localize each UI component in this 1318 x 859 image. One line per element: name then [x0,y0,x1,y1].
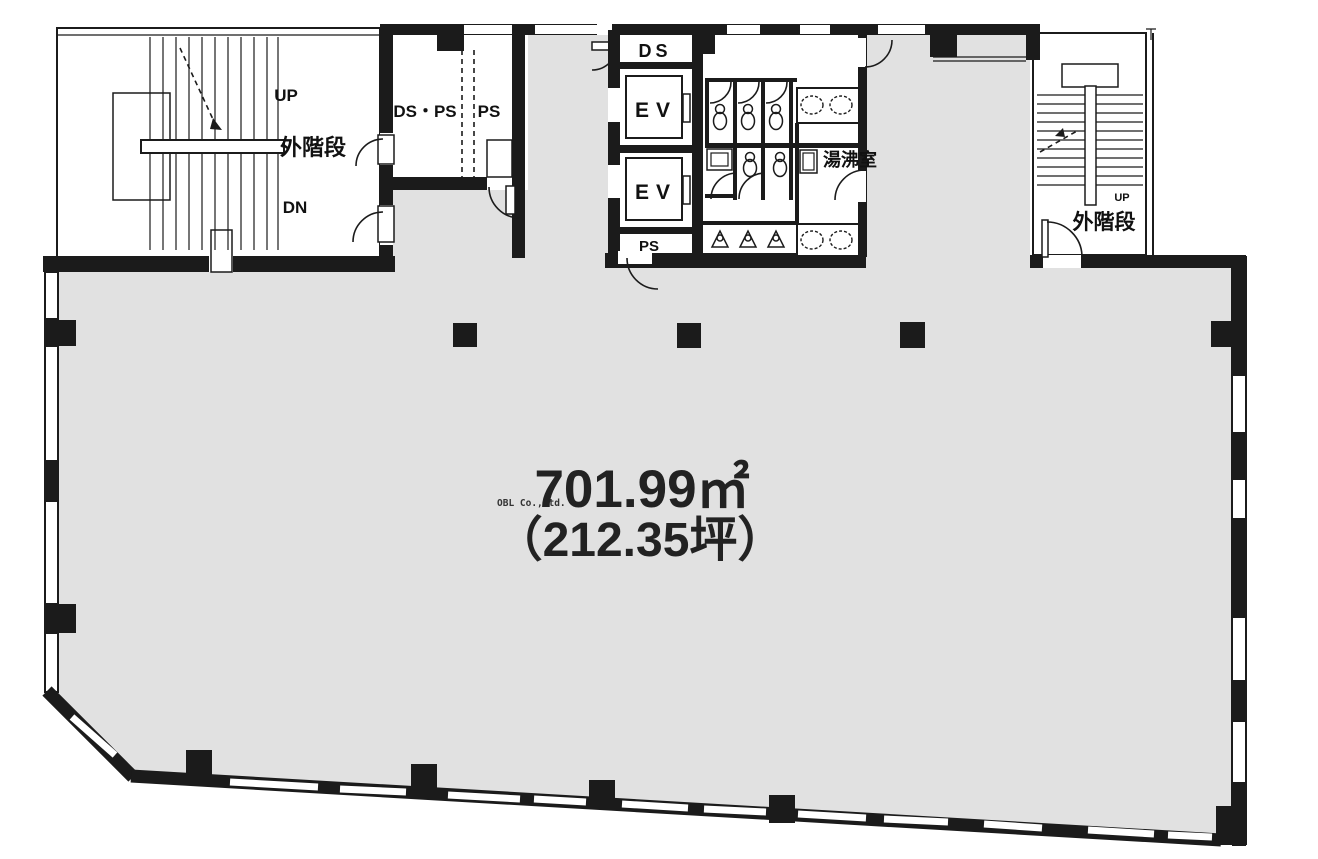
right-wall-segment [1232,432,1246,480]
column-bump [186,750,212,777]
area-labels: OBL Co.,Ltd. 701.99㎡ （212.35坪） [495,459,786,567]
elevator-indicator [683,94,690,122]
door-gap [858,38,866,67]
elevator-indicator [683,176,690,204]
column-bump [930,31,957,57]
floor-below-duct-room [393,190,525,262]
floor-right-of-toilets [866,34,1030,258]
kitchenette-label: 湯沸室 [823,149,877,170]
column-bump [589,780,615,807]
duct-block [437,25,464,51]
stall-wall [705,143,865,148]
stall-wall [795,123,799,223]
stall-wall [733,78,737,146]
top-wall-window [878,25,925,34]
stall-wall [789,148,793,200]
column-bump [46,320,76,346]
core-wall [608,62,703,69]
top-wall-window [535,25,597,34]
stall-wall [705,78,797,82]
duct-room-right-wall [512,25,525,258]
elevator-door-gap [608,88,620,122]
right-wall-segment [1232,680,1246,722]
column-bump [1211,321,1233,347]
elevator-door-gap [608,165,620,198]
floor-plan-drawing: UP 外階段 DN DS・PS PS [0,0,1318,859]
area-tsubo: （212.35坪） [495,514,786,567]
duct-step [487,140,512,177]
stair-landing-divider [1085,86,1096,205]
stall-wall [789,78,793,146]
area-square-meters: 701.99㎡ [534,459,749,519]
stair-left-name-label: 外階段 [280,135,346,160]
top-wall-stub [1026,24,1040,60]
core-wall [608,227,703,234]
stall-wall [761,78,765,146]
elevator1-label: EV [635,99,677,122]
right-wall-segment [1232,518,1246,618]
stall-wall [703,221,798,225]
right-wall-segment [1231,256,1247,376]
column-bump [46,604,76,633]
sink-counter [797,224,859,256]
door-gap [858,171,866,202]
stair-left-down-label: DN [283,198,308,217]
stall-wall [705,194,735,198]
stair-right-up-label: UP [1114,192,1129,204]
stall-wall [705,78,709,146]
sink-counter [797,88,859,123]
column [900,322,925,348]
duct-room-label-left: DS・PS [393,102,456,121]
top-wall-window [800,25,830,34]
elevator2-label: EV [635,181,677,204]
column [453,323,477,347]
column-bump [411,764,437,791]
stair-left-up-label: UP [274,86,298,105]
floor-plan: UP 外階段 DN DS・PS PS [0,0,1318,859]
pipe-shaft-label: PS [639,238,659,255]
stair-right-name-label: 外階段 [1073,210,1136,234]
duct-room-label-right: PS [478,102,501,121]
door-threshold [211,230,232,272]
top-wall-window [727,25,760,34]
column [677,323,701,348]
door-leaf [1042,220,1048,257]
core-wall [608,145,703,153]
left-wall-segment [45,460,58,502]
door-leaf [506,186,515,214]
corridor-floor [525,30,608,262]
column-bump [769,795,795,823]
stair-landing [141,140,284,153]
right-wall-segment [1232,782,1246,846]
top-duct-label: DS [638,41,671,61]
